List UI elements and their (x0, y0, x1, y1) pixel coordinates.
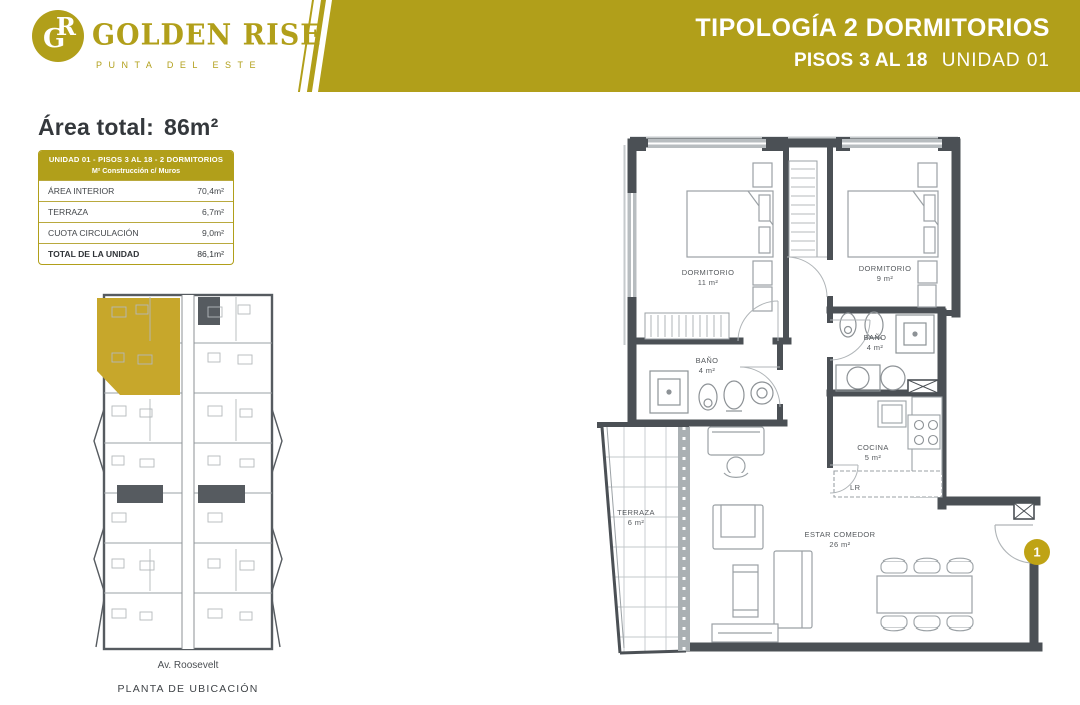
room-name-bedroom1: DORMITORIO (682, 268, 735, 277)
monogram-r: R (56, 12, 76, 41)
room-name-bedroom2: DORMITORIO (859, 264, 912, 273)
table-header-line1: UNIDAD 01 - PISOS 3 AL 18 - 2 DORMITORIO… (43, 155, 229, 164)
room-name-bath1: BAÑO (696, 356, 719, 365)
bathroom2-fixtures (836, 312, 934, 391)
room-area-bath2: 4 m² (867, 343, 884, 352)
desk-and-chair (708, 427, 764, 477)
table-row: ÁREA INTERIOR 70,4m² (39, 180, 233, 201)
room-name-kitchen: COCINA (857, 443, 889, 452)
brochure-page: TIPOLOGÍA 2 DORMITORIOS PISOS 3 AL 18UNI… (0, 0, 1080, 705)
entry-shaft (1014, 503, 1034, 519)
corridor (182, 295, 194, 649)
duct-shaft (908, 380, 938, 393)
brand-logo: G R GOLDEN RISE PUNTA DEL ESTE (30, 8, 290, 86)
bed-bedroom1 (687, 163, 773, 311)
total-label: TOTAL DE LA UNIDAD (48, 249, 139, 259)
row-label: TERRAZA (48, 207, 88, 217)
room-area-terrace: 6 m² (628, 518, 645, 527)
washer-label: LR (850, 483, 861, 492)
row-label: CUOTA CIRCULACIÓN (48, 228, 139, 238)
area-total-label: Área total: (38, 114, 154, 140)
terrace (602, 427, 690, 653)
highlighted-unit (97, 298, 180, 395)
location-plan (88, 291, 288, 653)
room-name-terrace: TERRAZA (617, 508, 655, 517)
tv-console (712, 624, 778, 642)
table-row: CUOTA CIRCULACIÓN 9,0m² (39, 222, 233, 243)
unit-badge-number: 1 (1033, 545, 1040, 560)
row-value: 9,0m² (202, 228, 224, 238)
floors-range: PISOS 3 AL 18 (794, 50, 928, 71)
room-name-living: ESTAR COMEDOR (805, 530, 876, 539)
typology-title: TIPOLOGÍA 2 DORMITORIOS (695, 14, 1050, 43)
header-text: TIPOLOGÍA 2 DORMITORIOS PISOS 3 AL 18UNI… (695, 14, 1050, 72)
row-label: ÁREA INTERIOR (48, 186, 114, 196)
brand-monogram-icon: G R (32, 10, 84, 62)
unit-areas-table: UNIDAD 01 - PISOS 3 AL 18 - 2 DORMITORIO… (38, 150, 234, 265)
brand-name: GOLDEN RISE (92, 19, 322, 52)
bedroom1-closet (645, 313, 729, 339)
bed-bedroom2 (848, 163, 938, 307)
street-label: Av. Roosevelt (88, 660, 288, 671)
balcony-band (198, 485, 245, 503)
room-area-kitchen: 5 m² (865, 453, 882, 462)
table-row-total: TOTAL DE LA UNIDAD 86,1m² (39, 243, 233, 264)
area-total-title: Área total:86m² (38, 114, 218, 141)
typology-subtitle: PISOS 3 AL 18UNIDAD 01 (695, 50, 1050, 72)
coffee-table (733, 565, 758, 617)
bathroom1-fixtures (650, 371, 773, 413)
room-area-bedroom1: 11 m² (698, 278, 719, 287)
unit-number: UNIDAD 01 (942, 50, 1050, 71)
brand-location: PUNTA DEL ESTE (96, 60, 262, 70)
room-name-bath2: BAÑO (864, 333, 887, 342)
dining-table (877, 576, 972, 613)
area-total-value: 86m² (164, 114, 219, 140)
room-area-living: 26 m² (829, 540, 850, 549)
room-area-bath1: 4 m² (699, 366, 716, 375)
table-header: UNIDAD 01 - PISOS 3 AL 18 - 2 DORMITORIO… (39, 151, 233, 180)
table-header-line2: M² Construcción c/ Muros (43, 166, 229, 175)
table-row: TERRAZA 6,7m² (39, 201, 233, 222)
armchair (713, 505, 763, 549)
balcony-band (117, 485, 163, 503)
bedroom2-door (787, 257, 827, 297)
location-plan-caption: PLANTA DE UBICACIÓN (78, 683, 298, 695)
unit-badge: 1 (1024, 539, 1050, 565)
row-value: 6,7m² (202, 207, 224, 217)
stair-core (198, 297, 220, 325)
room-area-bedroom2: 9 m² (877, 274, 894, 283)
total-value: 86,1m² (197, 249, 224, 259)
floor-plan: LR (590, 135, 1060, 665)
bathroom1-door (740, 367, 780, 407)
hall-wardrobe (789, 161, 817, 257)
sofa (774, 551, 812, 628)
row-value: 70,4m² (197, 186, 224, 196)
